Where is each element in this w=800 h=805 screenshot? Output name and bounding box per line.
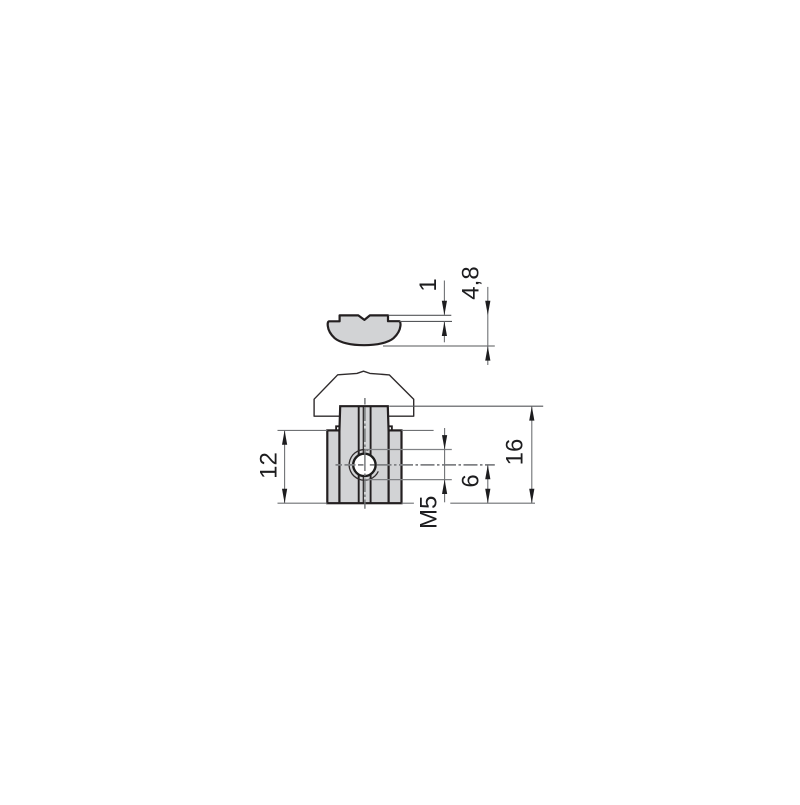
svg-text:12: 12	[256, 452, 283, 479]
svg-text:4,8: 4,8	[458, 266, 485, 299]
svg-text:16: 16	[501, 439, 528, 466]
svg-text:6: 6	[457, 474, 484, 487]
svg-text:M5: M5	[416, 496, 443, 529]
svg-text:1: 1	[415, 278, 442, 291]
